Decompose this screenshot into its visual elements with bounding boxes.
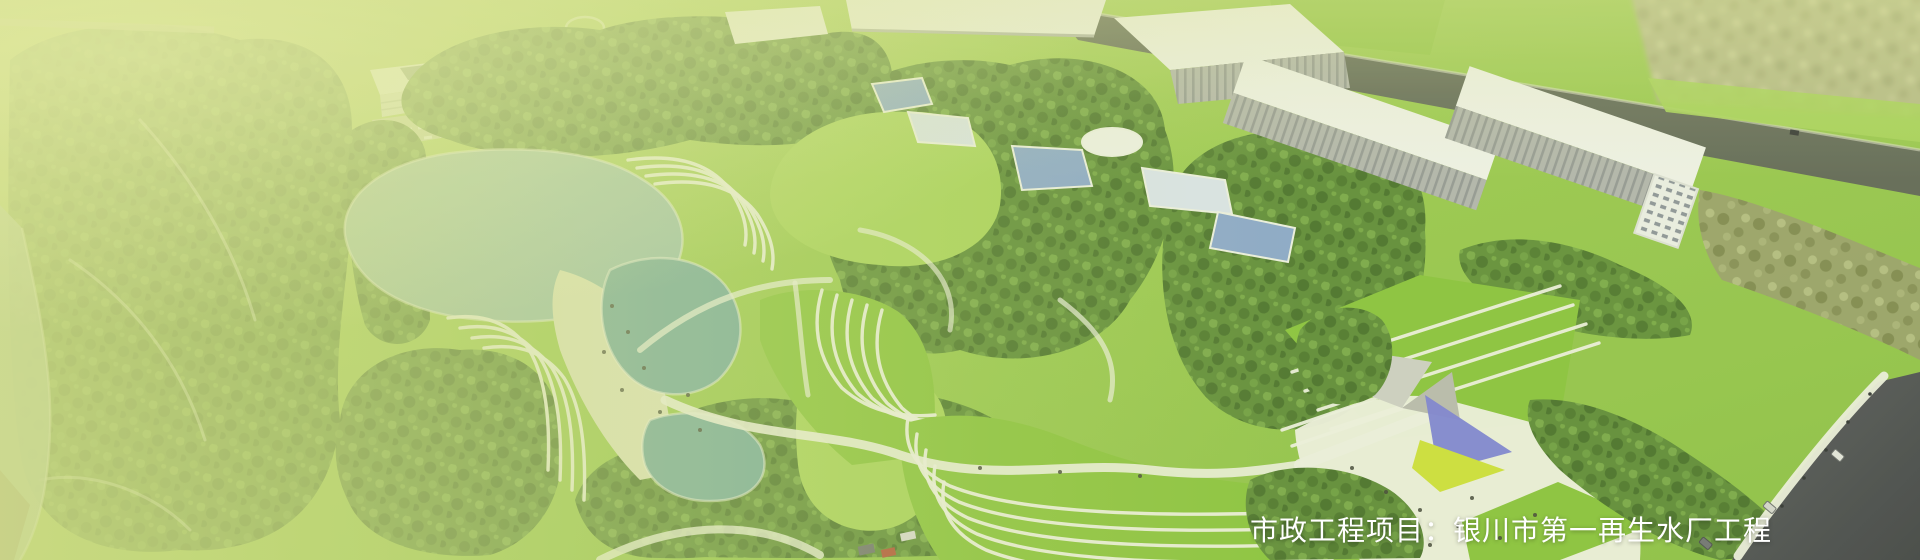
caption-text: 市政工程项目：银川市第一再生水厂工程 — [1250, 514, 1772, 548]
wash-overlay — [0, 0, 1920, 560]
global-tint — [0, 0, 1920, 560]
project-banner: 市政工程项目：银川市第一再生水厂工程 — [0, 0, 1920, 560]
site-rendering — [0, 0, 1920, 560]
